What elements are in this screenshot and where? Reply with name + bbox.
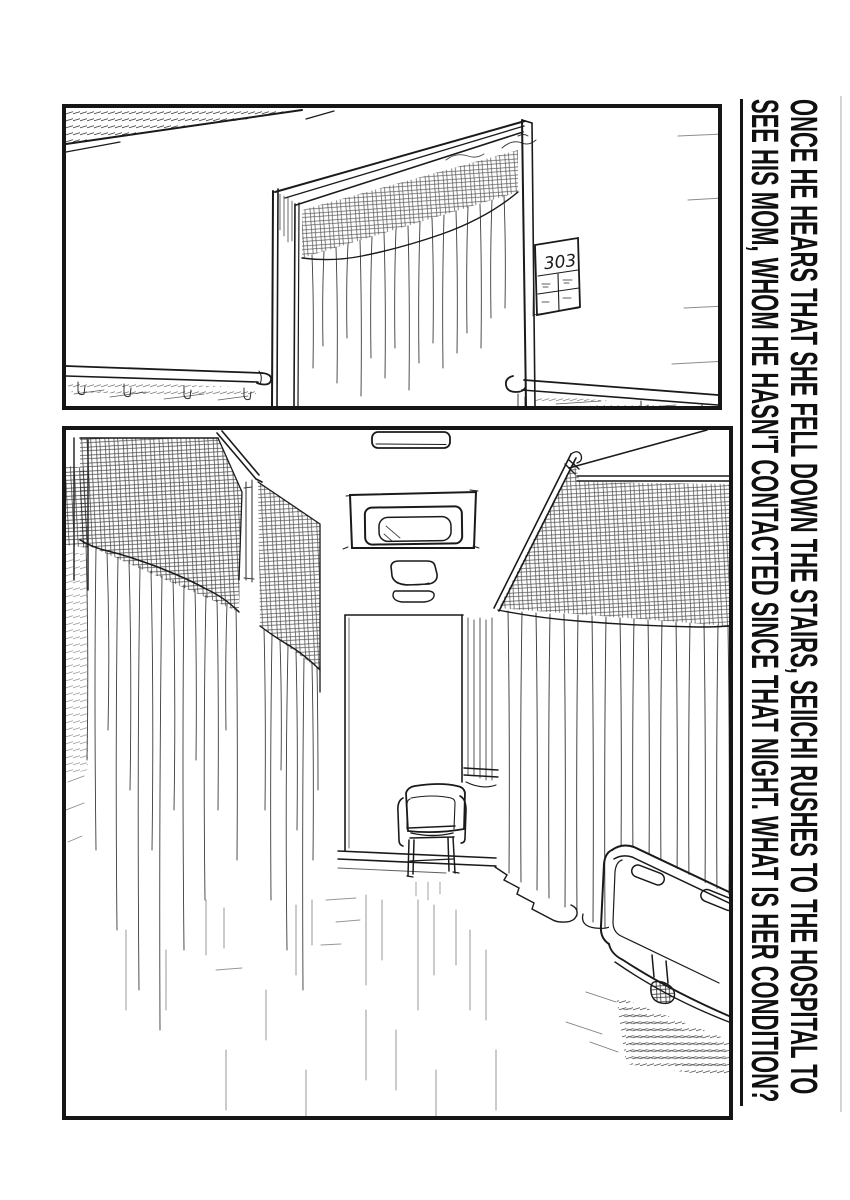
manga-page: 303 [0, 0, 850, 1200]
smoke-detector [391, 561, 437, 602]
panel-corridor-door: 303 [62, 104, 722, 410]
page-edge-line [840, 96, 842, 1112]
left-curtain-front [80, 438, 242, 1030]
floor-reflections [126, 895, 496, 1116]
corridor-door-art: 303 [66, 108, 718, 406]
doorway-curtain [302, 150, 518, 396]
panel-ward-aisle [62, 426, 733, 1120]
alcove-curtain [464, 618, 498, 787]
room-sign: 303 [533, 238, 580, 316]
room-sign-number: 303 [543, 251, 577, 274]
ceiling-edge [66, 108, 334, 152]
ceiling-vent [372, 432, 450, 448]
window-gap [244, 480, 254, 582]
chair [398, 784, 466, 900]
left-handrail [66, 366, 271, 400]
right-curtain [494, 430, 729, 928]
bed-foot [566, 846, 729, 1078]
ceiling-light [343, 490, 479, 549]
ward-aisle-art [66, 430, 729, 1116]
right-handrail [506, 376, 718, 406]
wall-marks [672, 134, 718, 364]
